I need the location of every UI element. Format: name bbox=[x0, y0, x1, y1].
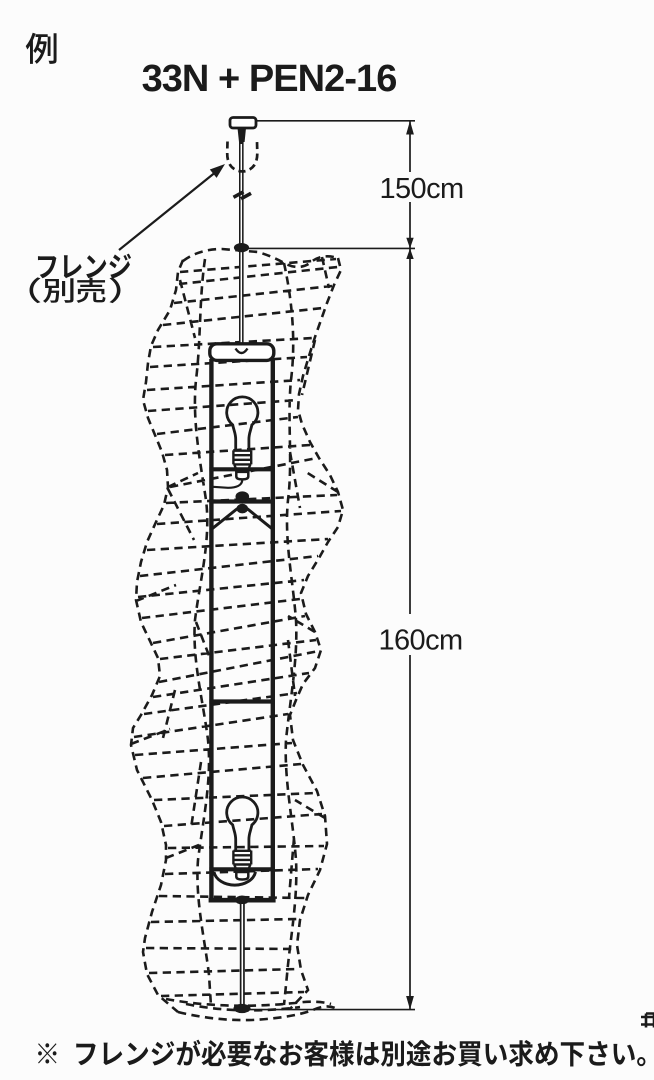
svg-text:160cm: 160cm bbox=[379, 625, 463, 657]
svg-text:33N + PEN2-16: 33N + PEN2-16 bbox=[142, 58, 397, 100]
svg-text:150cm: 150cm bbox=[380, 173, 464, 205]
